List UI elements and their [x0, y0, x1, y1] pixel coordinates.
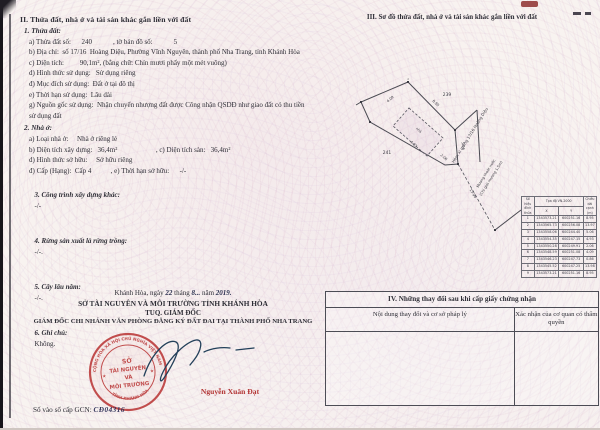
parcel-use-purpose-line: đ) Mục đích sử dụng: Đất ở tại đô thị	[20, 79, 308, 90]
section-iv-title: IV. Những thay đổi sau khi cấp giấy chứn…	[326, 292, 598, 308]
coord-edge-length: 4.93	[583, 236, 596, 243]
date-prefix: Khánh Hòa, ngày	[114, 289, 163, 297]
coord-vertex-no: 2	[522, 223, 535, 230]
road-name-label: Hẻm xi măng 17/16 Hoàng Diệu	[451, 106, 490, 164]
coord-vertex-no: 1	[522, 216, 535, 223]
coord-y-value: 600249.91	[559, 243, 583, 250]
date-month-handwritten: 8...	[191, 289, 200, 297]
authorization-line: TUQ. GIÁM ĐỐC	[18, 309, 328, 317]
signer-name: Nguyễn Xuân Đạt	[160, 387, 300, 396]
corner-smudge	[0, 0, 16, 18]
coord-edge-length: 13.97	[583, 223, 596, 230]
gcn-number-handwritten: CĐ04316	[94, 406, 125, 414]
coord-y-value: 600256.08	[559, 223, 583, 230]
other-constructions-line: 3. Công trình xây dựng khác: -/-	[20, 180, 308, 222]
date-year-handwritten: 2019.	[216, 289, 232, 297]
section-ii-title: II. Thửa đất, nhà ở và tài sản khác gắn …	[20, 15, 308, 24]
dim-top: 8.95	[431, 99, 440, 107]
parcel-use-form-line: d) Hình thức sử dụng: Sử dụng riêng	[20, 68, 308, 79]
parcel-area-line: c) Diện tích: 90,1m², (bằng chữ: Chín mư…	[20, 58, 308, 69]
red-stamp-fragment	[521, 1, 538, 7]
coord-vertex-no: 8	[522, 263, 535, 270]
house-heading: 2. Nhà ở:	[20, 123, 308, 134]
date-mid1: tháng	[174, 289, 190, 297]
coord-y-value: 600247.73	[559, 257, 583, 264]
coord-col-x: X	[534, 206, 559, 216]
dim-road: 13.98	[468, 188, 477, 199]
house-area-line: b) Diện tích xây dựng: 36,4m² , c) Diện …	[20, 145, 308, 156]
parcel-number-line: a) Thửa đất số: 240 , tờ bản đồ số: 5	[20, 37, 308, 48]
coord-y-value: 600251.08	[559, 250, 583, 257]
changes-confirmation-column: Xác nhận của cơ quan có thẩm quyền	[515, 308, 598, 405]
forest-label: 4. Rừng sản xuất là rừng trồng:	[35, 237, 128, 245]
coord-y-value: 600251.16	[559, 216, 583, 223]
gcn-label: Số vào sổ cấp GCN:	[33, 406, 92, 414]
issuing-authority: SỞ TÀI NGUYÊN VÀ MÔI TRƯỜNG TỈNH KHÁNH H…	[18, 299, 328, 308]
coord-row: 3 1343558.06 600244.40 5.06	[522, 229, 597, 236]
coord-col-vn2000: Tọa độ VN-2000	[534, 197, 583, 207]
forest-value: -/-.	[35, 248, 43, 256]
note-value: Không.	[35, 340, 56, 348]
section-iv-changes-table: IV. Những thay đổi sau khi cấp giấy chứn…	[325, 291, 599, 406]
coord-vertex-no: 4	[522, 236, 535, 243]
changes-content-header: Nội dung thay đổi và cơ sở pháp lý	[326, 308, 514, 332]
section-iii-title: III. Sơ đồ thửa đất, nhà ở và tài sản kh…	[308, 13, 596, 21]
other-constructions-value: -/-	[35, 202, 42, 210]
page-left-edge	[0, 0, 3, 430]
coord-edge-length: 2.06	[583, 243, 596, 250]
changes-confirmation-header: Xác nhận của cơ quan có thẩm quyền	[515, 308, 598, 332]
house-grade-line: đ) Cấp (Hạng): Cấp 4 , e) Thời hạn sở hữ…	[20, 166, 308, 177]
coord-edge-length: 8.95	[583, 216, 596, 223]
coord-row: 4 1343554.35 600247.15 4.93	[522, 236, 597, 243]
coord-x-value: 1343546.23	[534, 257, 559, 264]
coord-row: 2 1343565.73 600256.08 13.97	[522, 223, 597, 230]
dim-corner: 2.06	[439, 153, 448, 162]
coord-x-value: 1343573.21	[534, 270, 559, 277]
coord-col-vertex: Số hiệu đỉnh thửa	[522, 197, 535, 216]
coord-vertex-no: 9	[522, 270, 535, 277]
coord-row: 9 1343573.21 600251.16 8.95	[522, 270, 597, 277]
dim-left: 4.09	[386, 95, 395, 104]
gcn-registry-line: Số vào sổ cấp GCN: CĐ04316	[33, 406, 125, 414]
handwritten-signature	[130, 332, 270, 392]
coord-edge-length: 8.95	[583, 270, 596, 277]
coord-edge-length: 13.98	[583, 263, 596, 270]
coord-edge-length: 5.06	[583, 229, 596, 236]
coord-vertex-no: 3	[522, 229, 535, 236]
parcel-origin-line: g) Nguồn gốc sử dụng: Nhận chuyển nhượng…	[20, 100, 308, 121]
coord-col-length: Chiều dài cạnh (m)	[583, 197, 596, 216]
signature-block: Khánh Hòa, ngày 22 tháng 8... năm 2019. …	[18, 289, 328, 325]
coord-edge-length: 0.86	[583, 257, 596, 264]
coord-vertex-no: 7	[522, 257, 535, 264]
forest-line: 4. Rừng sản xuất là rừng trồng: -/-.	[20, 226, 308, 268]
coord-y-value: 600244.40	[559, 229, 583, 236]
coord-y-value: 600251.16	[559, 270, 583, 277]
coord-vertex-no: 5	[522, 243, 535, 250]
coord-vertex-no: 6	[522, 250, 535, 257]
parcel-term-line: e) Thời hạn sử dụng: Lâu dài	[20, 90, 308, 101]
coord-y-value: 600247.15	[559, 236, 583, 243]
changes-content-column: Nội dung thay đổi và cơ sở pháp lý	[326, 308, 515, 405]
coord-x-value: 1343565.73	[534, 223, 559, 230]
coord-x-value: 1343545.52	[534, 263, 559, 270]
neighbor-parcel-239: 239	[443, 92, 452, 98]
vertex-1-label: 1	[407, 78, 409, 81]
coord-row: 8 1343545.52 600247.25 13.98	[522, 263, 597, 270]
parcel-address-line: b) Địa chỉ: số 17/16 Hoàng Diệu, Phường …	[20, 47, 308, 58]
house-ownership-line: d) Hình thức sở hữu: Sở hữu riêng	[20, 155, 308, 166]
coordinate-table: Số hiệu đỉnh thửa Tọa độ VN-2000 Chiều d…	[521, 196, 597, 278]
coord-x-value: 1343558.06	[534, 229, 559, 236]
coord-x-value: 1343548.59	[534, 250, 559, 257]
coord-row: 7 1343546.23 600247.73 0.86	[522, 257, 597, 264]
date-mid2: năm	[202, 289, 214, 297]
stamp-star-left: ★	[102, 373, 107, 379]
coord-x-value: 1343573.21	[534, 216, 559, 223]
coord-x-value: 1343554.35	[534, 236, 559, 243]
coord-x-value: 1343550.28	[534, 243, 559, 250]
coord-y-value: 600247.25	[559, 263, 583, 270]
date-day-handwritten: 22	[165, 289, 172, 297]
house-type-line: a) Loại nhà ở: Nhà ở riêng lẻ	[20, 134, 308, 145]
parcel-heading: 1. Thửa đất:	[20, 26, 308, 37]
signer-role: GIÁM ĐỐC CHI NHÁNH VĂN PHÒNG ĐĂNG KÝ ĐẤT…	[18, 318, 328, 325]
other-constructions-label: 3. Công trình xây dựng khác:	[35, 191, 121, 199]
note-label: 6. Ghi chú:	[35, 329, 68, 337]
page-gutter-line	[9, 14, 11, 418]
coord-row: 6 1343548.59 600251.08 4.09	[522, 250, 597, 257]
coord-row: 1 1343573.21 600251.16 8.95	[522, 216, 597, 223]
land-certificate-page: II. Thửa đất, nhà ở và tài sản khác gắn …	[0, 0, 600, 430]
coord-row: 5 1343550.28 600249.91 2.06	[522, 243, 597, 250]
neighbor-parcel-241: 241	[383, 150, 392, 156]
coord-edge-length: 4.09	[583, 250, 596, 257]
date-line: Khánh Hòa, ngày 22 tháng 8... năm 2019.	[18, 289, 328, 297]
coord-col-y: Y	[559, 206, 583, 216]
